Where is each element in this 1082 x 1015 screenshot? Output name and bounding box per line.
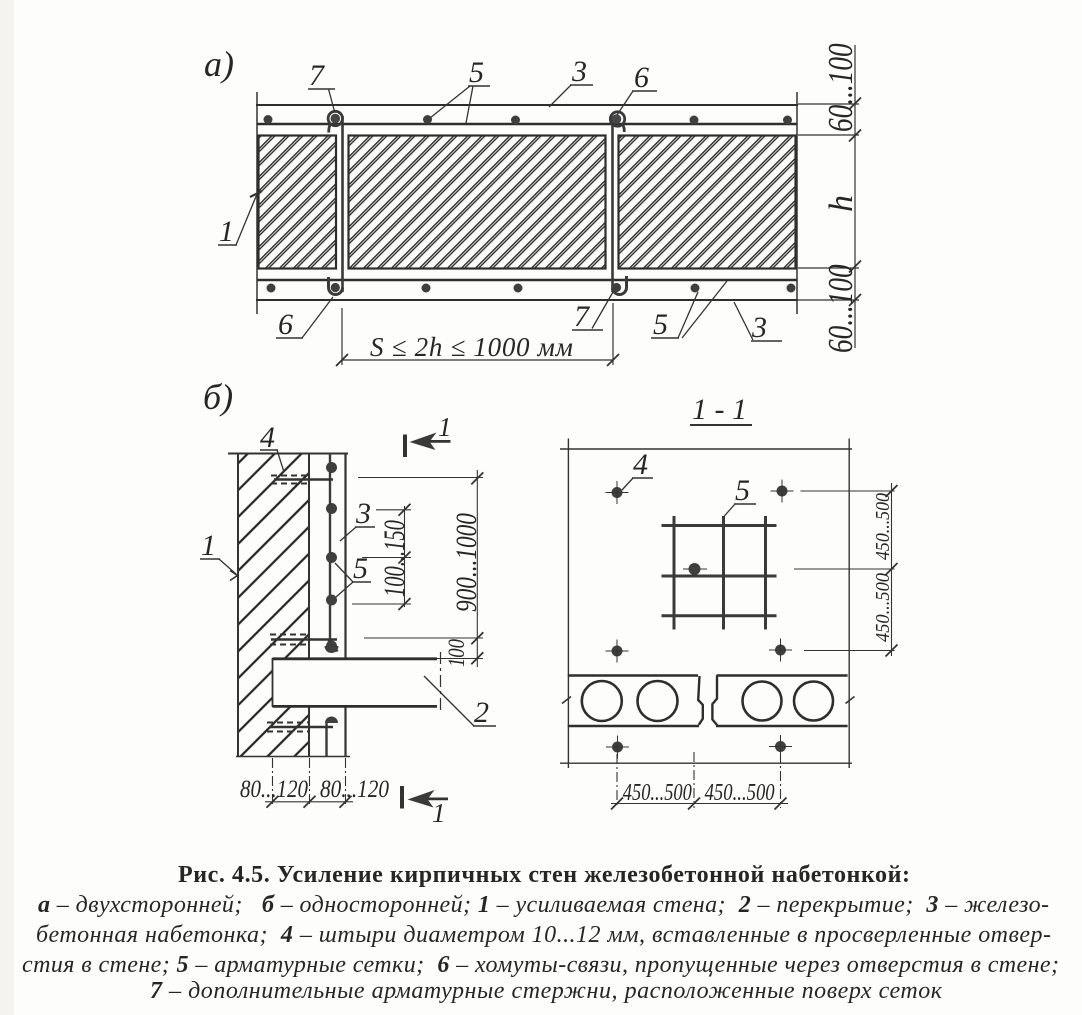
- svg-text:7: 7: [574, 300, 591, 333]
- svg-text:900...1000: 900...1000: [449, 513, 483, 612]
- svg-text:а – двухсторонней; б – однос: а – двухсторонней; б – односторонней; 1 …: [38, 892, 1049, 918]
- svg-text:100: 100: [443, 639, 469, 667]
- svg-text:1: 1: [438, 412, 452, 442]
- svg-text:4: 4: [633, 448, 648, 481]
- svg-text:100...150: 100...150: [377, 520, 411, 597]
- svg-text:1: 1: [201, 529, 216, 562]
- svg-text:а): а): [204, 44, 234, 84]
- svg-text:Рис. 4.5. Усиление кирпичных с: Рис. 4.5. Усиление кирпичных стен железо…: [178, 862, 910, 888]
- svg-text:80...120: 80...120: [240, 774, 308, 802]
- svg-text:450...500: 450...500: [623, 779, 692, 806]
- svg-text:60...100: 60...100: [821, 264, 860, 353]
- svg-text:6: 6: [634, 61, 649, 94]
- svg-text:S ≤ 2h ≤ 1000 мм: S ≤ 2h ≤ 1000 мм: [370, 332, 574, 362]
- svg-text:h: h: [823, 195, 860, 212]
- svg-text:7 – дополнительные арматурные: 7 – дополнительные арматурные стержни, р…: [150, 978, 943, 1004]
- svg-text:1: 1: [432, 798, 446, 828]
- svg-text:450...500: 450...500: [872, 573, 894, 642]
- svg-text:1: 1: [219, 215, 234, 248]
- svg-text:1 - 1: 1 - 1: [692, 393, 747, 426]
- svg-text:6: 6: [278, 308, 293, 341]
- svg-text:2: 2: [474, 696, 489, 729]
- svg-text:5: 5: [735, 474, 750, 507]
- svg-text:450...500: 450...500: [872, 493, 894, 560]
- svg-text:5: 5: [469, 56, 484, 89]
- svg-text:3: 3: [571, 55, 587, 88]
- svg-text:7: 7: [309, 59, 326, 92]
- svg-text:4: 4: [260, 421, 275, 454]
- svg-text:80...120: 80...120: [320, 775, 389, 803]
- svg-text:3: 3: [355, 497, 371, 530]
- svg-text:3: 3: [751, 311, 767, 344]
- svg-text:450...500: 450...500: [705, 779, 775, 806]
- svg-text:б): б): [203, 377, 233, 417]
- svg-text:5: 5: [653, 308, 668, 341]
- svg-text:60...100: 60...100: [821, 43, 860, 132]
- svg-text:бетонная набетонка; 4 – штыри: бетонная набетонка; 4 – штыри диаметром …: [36, 922, 1051, 948]
- svg-text:стия в стене; 5 – арматурные с: стия в стене; 5 – арматурные сетки; 6 – …: [22, 952, 1059, 978]
